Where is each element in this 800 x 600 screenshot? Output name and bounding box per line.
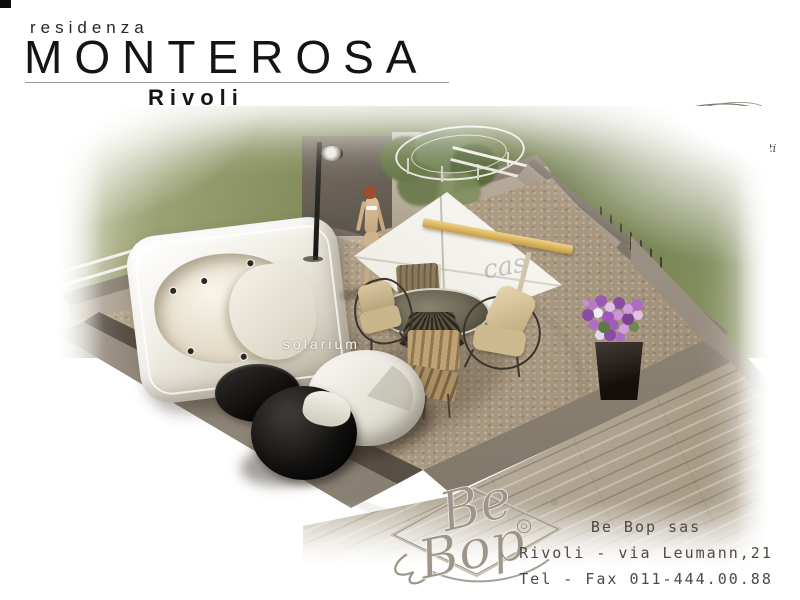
round-lounge-black (251, 386, 357, 480)
solarium-label: solarium (283, 336, 360, 352)
brand-title: MONTEROSA (24, 30, 428, 84)
outdoor-shower-base (303, 256, 323, 262)
flowers (583, 300, 589, 306)
contact-company: Be Bop sas (498, 514, 794, 540)
flyer-page: residenza MONTEROSA Rivoli Archimede® Pr… (0, 0, 800, 600)
corner-mark (0, 0, 11, 8)
outdoor-shower-head (321, 146, 343, 161)
figure-bikini-top (366, 206, 377, 210)
brand-divider (25, 82, 449, 83)
railing-post (441, 166, 443, 182)
logo-registered-mark: ® (551, 497, 558, 507)
figure-head (364, 186, 376, 199)
flower-planter (595, 342, 643, 400)
contact-phone: Tel - Fax 011-444.00.88 (498, 566, 794, 592)
chair-slats (408, 330, 460, 370)
figure-torso (364, 197, 378, 234)
railing-post (407, 158, 409, 174)
contact-block: Be Bop sas Rivoli - via Leumann,21 Tel -… (498, 514, 794, 592)
contact-address: Rivoli - via Leumann,21 (498, 540, 794, 566)
